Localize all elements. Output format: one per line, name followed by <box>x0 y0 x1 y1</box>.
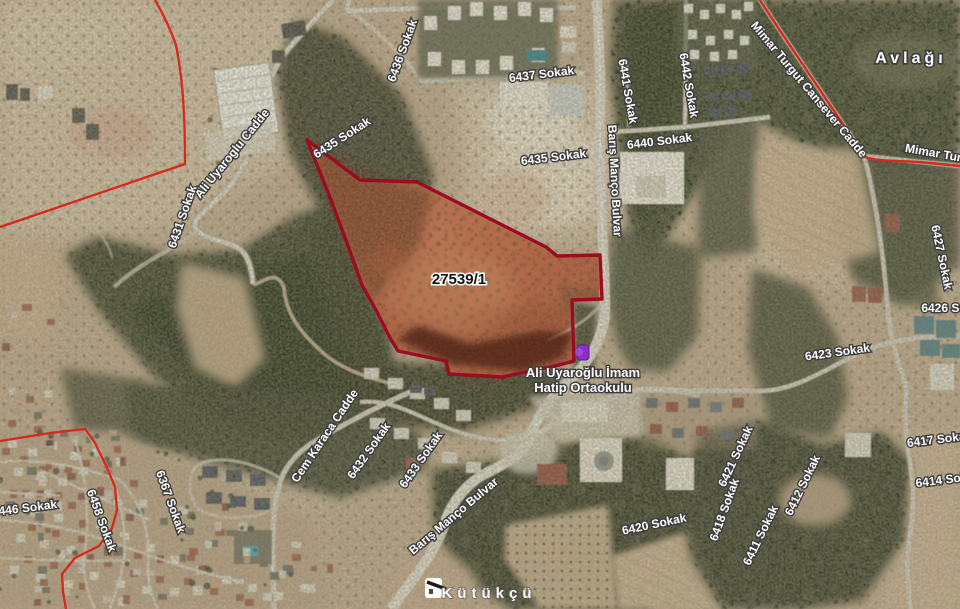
svg-text:6426 So: 6426 So <box>921 301 960 315</box>
svg-text:Kütükçü: Kütükçü <box>442 585 537 602</box>
svg-text:Avlağı: Avlağı <box>875 50 946 67</box>
svg-text:27539/1: 27539/1 <box>432 271 486 288</box>
svg-text:Ali Uyaroğlu İmam: Ali Uyaroğlu İmam <box>526 365 640 380</box>
svg-text:Hatip Ortaokulu: Hatip Ortaokulu <box>534 380 632 395</box>
